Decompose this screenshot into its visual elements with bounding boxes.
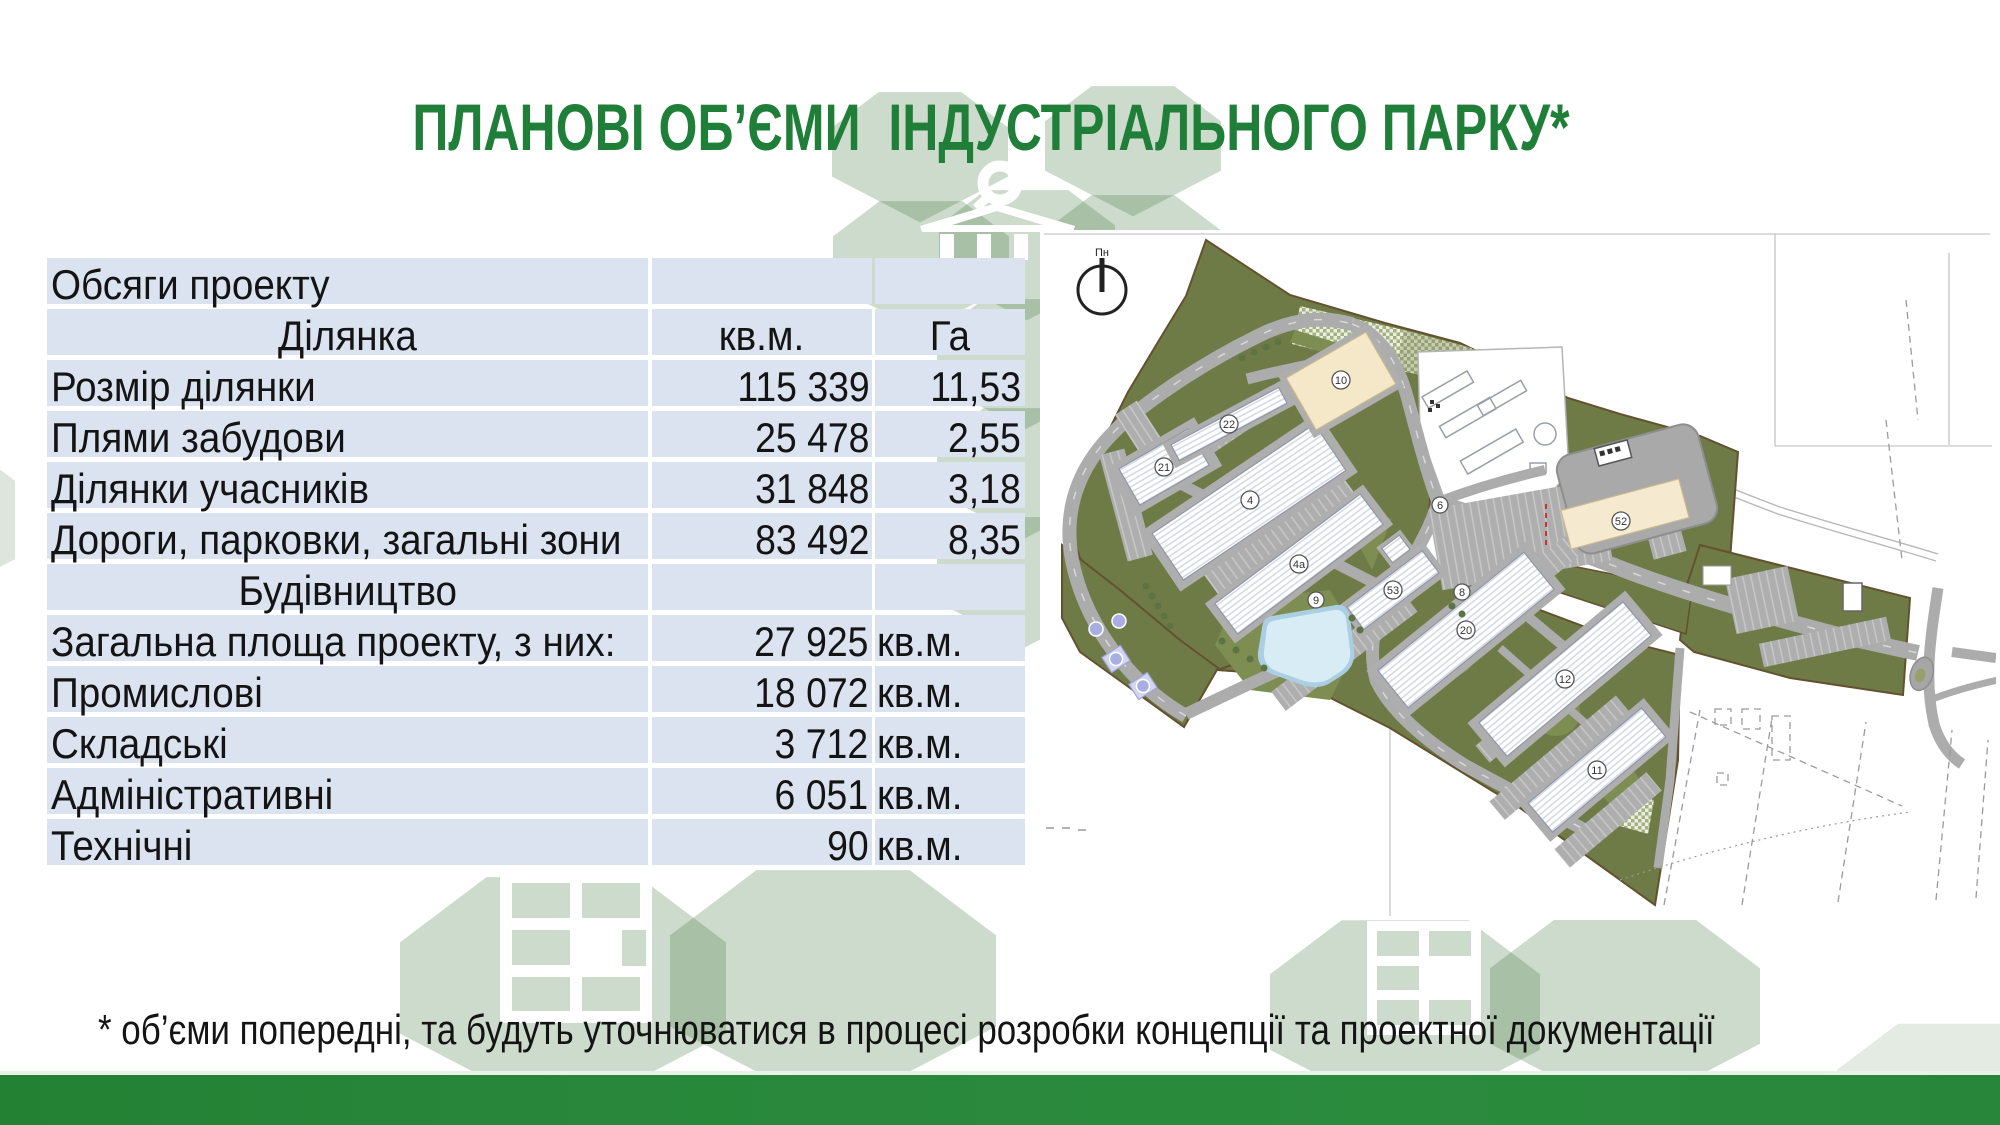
svg-text:53: 53 (1387, 585, 1399, 597)
svg-text:20: 20 (1460, 625, 1472, 637)
svg-text:21: 21 (1158, 462, 1170, 474)
svg-text:4: 4 (1247, 495, 1253, 507)
svg-text:12: 12 (1559, 674, 1571, 686)
svg-text:Пн: Пн (1095, 247, 1109, 259)
svg-text:10: 10 (1335, 375, 1347, 387)
svg-text:4а: 4а (1293, 559, 1306, 571)
svg-text:52: 52 (1615, 516, 1627, 528)
svg-text:22: 22 (1223, 419, 1235, 431)
svg-text:6: 6 (1437, 500, 1443, 512)
svg-text:11: 11 (1591, 765, 1602, 777)
svg-text:9: 9 (1313, 595, 1319, 607)
svg-text:8: 8 (1459, 587, 1465, 599)
